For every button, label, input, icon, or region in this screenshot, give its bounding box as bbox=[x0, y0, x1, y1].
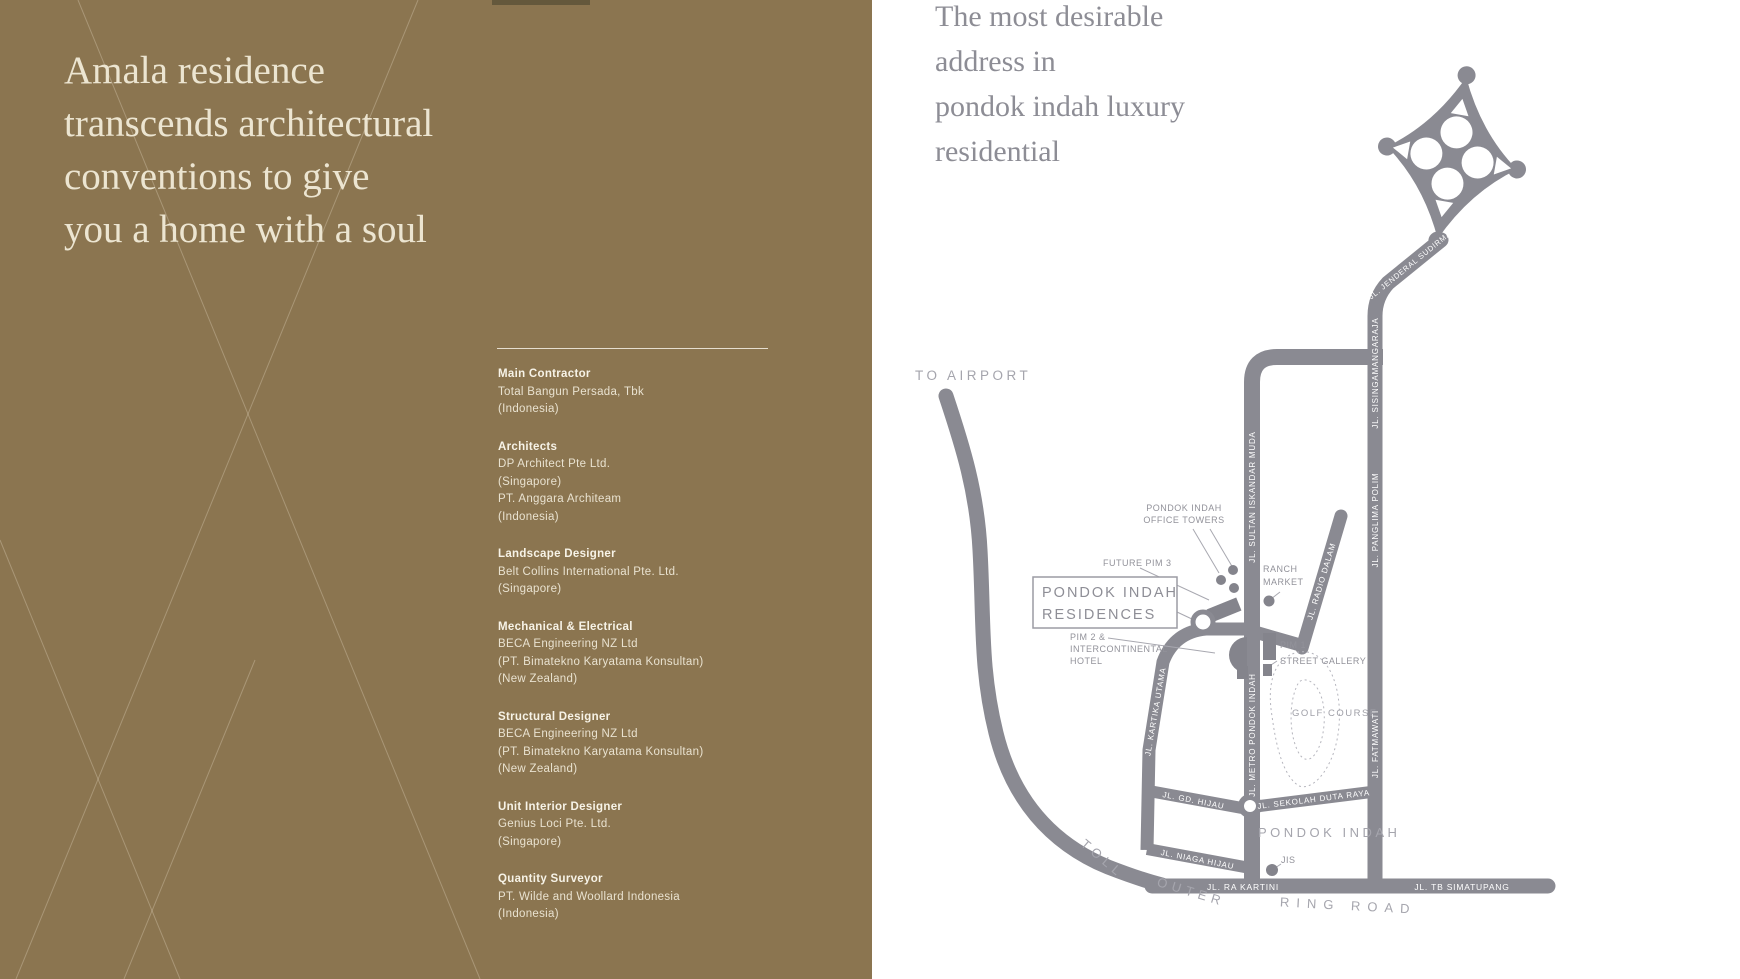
ranch-market-dot bbox=[1264, 596, 1275, 607]
street-gallery-building bbox=[1263, 664, 1272, 676]
road-label-ra-kartini: JL. RA KARTINI bbox=[1207, 882, 1279, 892]
road-label-panglima-polim: JL. PANGLIMA POLIM bbox=[1371, 473, 1380, 568]
office-towers-label-2: OFFICE TOWERS bbox=[1143, 515, 1224, 525]
pondok-indah-residences-box: PONDOK INDAH RESIDENCES bbox=[1033, 577, 1178, 628]
pondok-indah-area-label: PONDOK INDAH bbox=[1258, 825, 1400, 840]
ranch-market-label-2: MARKET bbox=[1263, 577, 1304, 587]
road-label-tb-simatupang: JL. TB SIMATUPANG bbox=[1414, 882, 1509, 892]
road-label-metro-pondok-indah: JL. METRO PONDOK INDAH bbox=[1248, 673, 1257, 796]
pim2-label-1: PIM 2 & bbox=[1070, 632, 1106, 642]
residences-location-marker bbox=[1193, 612, 1213, 632]
jis-label: JIS bbox=[1281, 855, 1296, 865]
golf-course-outline bbox=[1270, 652, 1339, 787]
residences-box-line2: RESIDENCES bbox=[1042, 607, 1156, 623]
toll-outer-label-3: RING ROAD bbox=[1280, 894, 1417, 916]
pim2-label-3: HOTEL bbox=[1070, 656, 1103, 666]
office-towers-label-1: PONDOK INDAH bbox=[1146, 503, 1222, 513]
road-label-sisingamangaraja: JL. SISINGAMANGARAJA bbox=[1371, 317, 1380, 428]
golf-course-label: GOLF COURSE bbox=[1292, 708, 1378, 719]
toll-jorr-label: TOLL JORR bbox=[1017, 633, 1030, 687]
road-label-radio-dalam: JL. RADIO DALAM bbox=[1306, 542, 1338, 621]
ranch-market-label-1: RANCH bbox=[1263, 564, 1298, 574]
to-airport-label: TO AIRPORT bbox=[915, 368, 1031, 383]
road-label-jenderal-sudirman: JL. JENDERAL SUDIRMAN bbox=[1367, 225, 1458, 301]
future-pim3-label: FUTURE PIM 3 bbox=[1103, 558, 1172, 568]
road-sisingamangaraja-fatmawati-sudirman bbox=[1375, 240, 1441, 886]
pim1-label: PIM 1 bbox=[1280, 640, 1306, 650]
road-label-fatmawati: JL. FATMAWATI bbox=[1371, 710, 1380, 778]
location-map: PONDOK INDAH RESIDENCES TO AIRPORT PONDO… bbox=[0, 0, 1740, 979]
golf-course-inner-outline bbox=[1291, 680, 1324, 759]
pim2-annex-building bbox=[1237, 666, 1248, 679]
street-gallery-label: STREET GALLERY bbox=[1280, 656, 1366, 666]
road-label-sultan-iskandar-muda: JL. SULTAN ISKANDAR MUDA bbox=[1248, 431, 1257, 562]
road-toll-jorr bbox=[946, 396, 1162, 885]
residences-box-line1: PONDOK INDAH bbox=[1042, 585, 1178, 601]
pim2-label-2: INTERCONTINENTAL bbox=[1070, 644, 1168, 654]
pim1-building bbox=[1263, 633, 1276, 660]
jis-dot bbox=[1266, 864, 1278, 876]
